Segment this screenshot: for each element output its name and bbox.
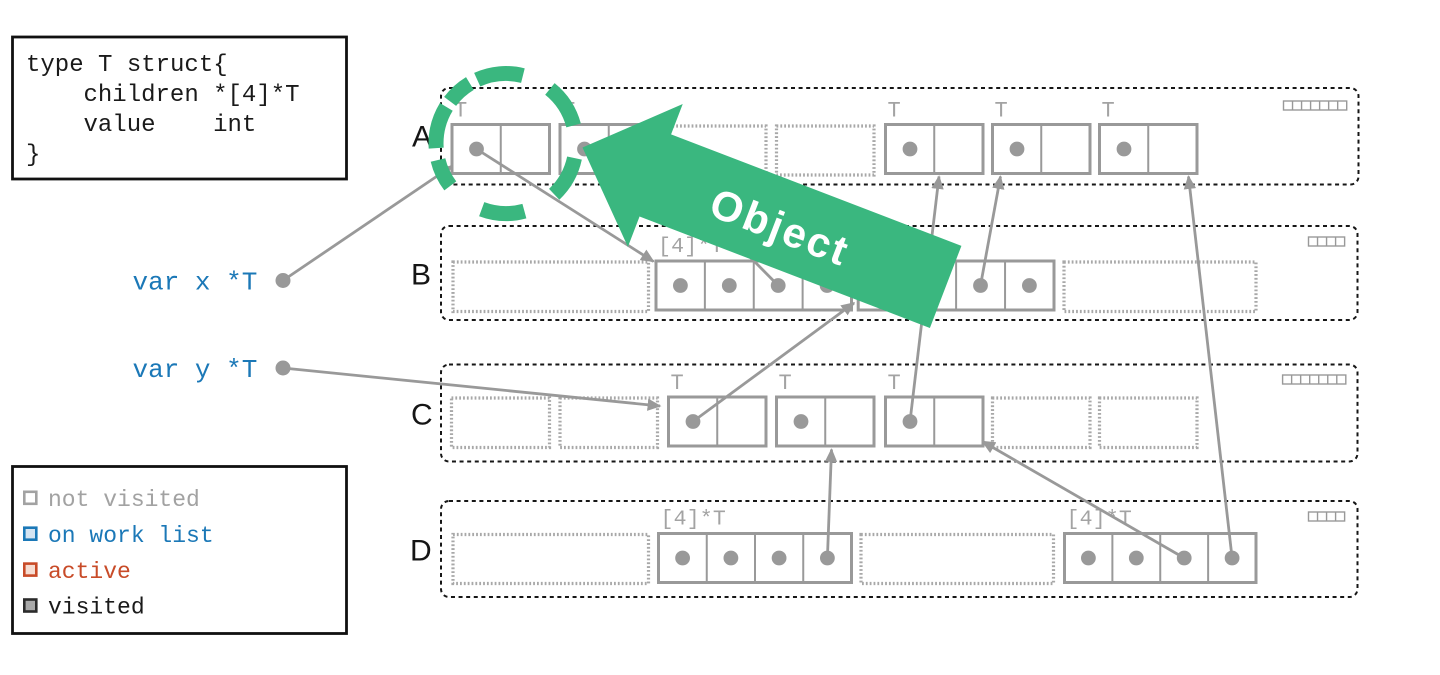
svg-text:T: T xyxy=(888,371,901,396)
svg-text:active: active xyxy=(48,559,131,585)
svg-text:children *[4]*T: children *[4]*T xyxy=(84,82,300,109)
svg-text:visited: visited xyxy=(48,595,145,621)
svg-text:var x *T: var x *T xyxy=(133,268,258,298)
svg-text:not visited: not visited xyxy=(48,487,200,513)
svg-text:T: T xyxy=(888,98,901,123)
svg-text:B: B xyxy=(411,259,431,292)
svg-text:T: T xyxy=(995,98,1008,123)
svg-text:var y *T: var y *T xyxy=(133,355,258,385)
svg-text:}: } xyxy=(26,142,40,169)
svg-text:T: T xyxy=(1102,98,1115,123)
svg-text:T: T xyxy=(671,371,684,396)
svg-text:T: T xyxy=(779,371,792,396)
svg-text:C: C xyxy=(411,399,433,432)
svg-text:type T struct{: type T struct{ xyxy=(26,52,228,79)
svg-text:[4]*T: [4]*T xyxy=(1067,508,1133,532)
svg-text:on work list: on work list xyxy=(48,523,214,549)
svg-text:value int: value int xyxy=(84,112,257,139)
svg-text:D: D xyxy=(410,535,432,568)
svg-text:[4]*T: [4]*T xyxy=(661,508,727,532)
